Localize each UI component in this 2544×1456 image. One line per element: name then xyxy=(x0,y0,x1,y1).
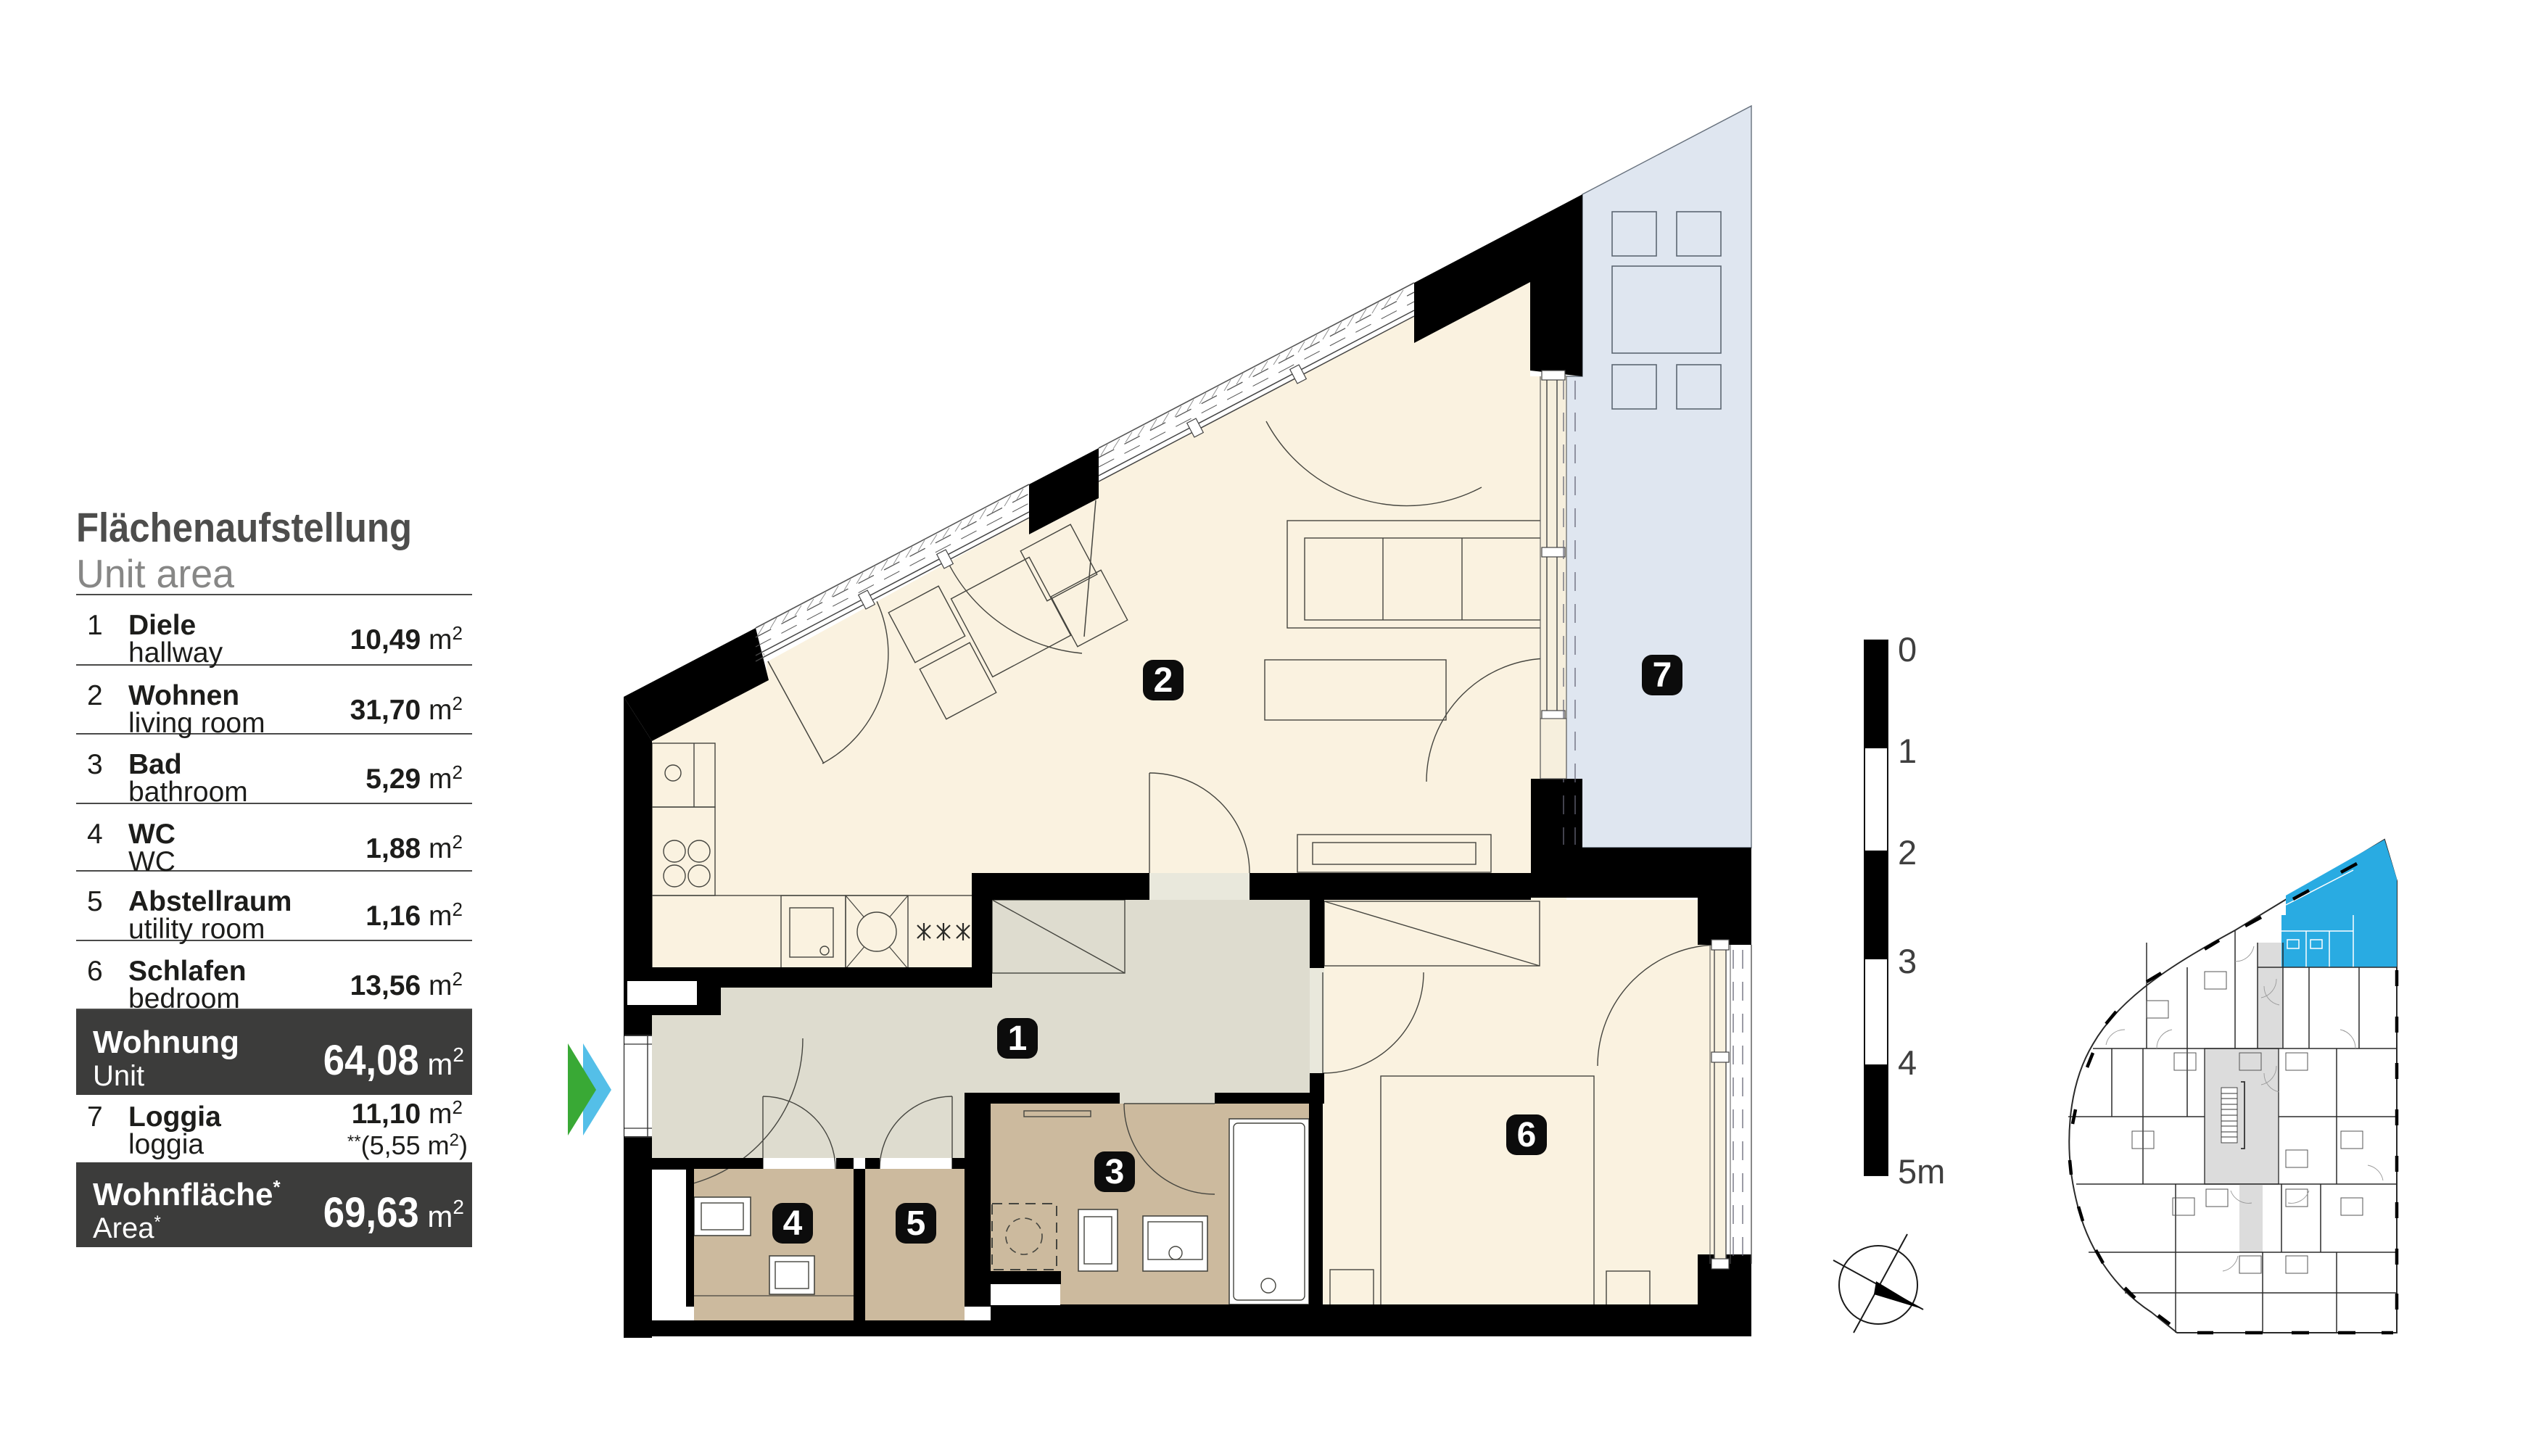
svg-text:1,16 m2: 1,16 m2 xyxy=(366,898,463,932)
svg-text:31,70 m2: 31,70 m2 xyxy=(350,692,463,726)
svg-text:3: 3 xyxy=(87,749,103,780)
svg-text:Flächenaufstellung: Flächenaufstellung xyxy=(76,505,412,551)
svg-text:Schlafen: Schlafen xyxy=(128,956,247,987)
svg-text:WC: WC xyxy=(128,846,175,877)
svg-text:Unit: Unit xyxy=(93,1060,144,1092)
svg-text:5: 5 xyxy=(87,886,103,917)
svg-text:utility room: utility room xyxy=(128,914,265,945)
svg-text:Wohnen: Wohnen xyxy=(128,680,239,711)
svg-text:Bad: Bad xyxy=(128,749,182,780)
svg-text:bathroom: bathroom xyxy=(128,777,248,808)
svg-text:7: 7 xyxy=(87,1101,103,1133)
svg-text:Loggia: Loggia xyxy=(128,1101,221,1133)
svg-text:Wohnung: Wohnung xyxy=(93,1025,239,1060)
svg-text:1: 1 xyxy=(87,610,103,641)
svg-text:1: 1 xyxy=(1898,732,1917,770)
svg-text:2: 2 xyxy=(1154,661,1173,700)
svg-text:1,88 m2: 1,88 m2 xyxy=(366,831,463,864)
svg-text:4: 4 xyxy=(1898,1043,1917,1082)
svg-text:0: 0 xyxy=(1898,630,1917,669)
svg-text:1: 1 xyxy=(1008,1019,1028,1058)
svg-text:living room: living room xyxy=(128,708,265,739)
svg-text:6: 6 xyxy=(87,956,103,987)
svg-text:4: 4 xyxy=(87,819,103,850)
svg-text:2: 2 xyxy=(87,680,103,711)
svg-text:5m: 5m xyxy=(1898,1152,1945,1191)
svg-text:5: 5 xyxy=(906,1204,926,1243)
svg-text:Wohnfläche*: Wohnfläche* xyxy=(93,1176,281,1212)
svg-text:11,10 m2: 11,10 m2 xyxy=(352,1096,463,1130)
svg-text:6: 6 xyxy=(1517,1116,1537,1154)
svg-text:**(5,55 m2): **(5,55 m2) xyxy=(347,1130,468,1160)
svg-text:4: 4 xyxy=(783,1204,803,1243)
svg-text:10,49 m2: 10,49 m2 xyxy=(350,622,463,655)
svg-text:7: 7 xyxy=(1653,656,1672,695)
svg-text:3: 3 xyxy=(1898,942,1917,980)
svg-text:WC: WC xyxy=(128,819,175,850)
svg-text:bedroom: bedroom xyxy=(128,983,240,1014)
svg-text:2: 2 xyxy=(1898,833,1917,872)
svg-text:5,29 m2: 5,29 m2 xyxy=(366,761,463,795)
svg-text:3: 3 xyxy=(1105,1153,1125,1191)
svg-text:Area*: Area* xyxy=(93,1212,161,1244)
svg-text:Abstellraum: Abstellraum xyxy=(128,886,292,917)
svg-text:Unit area: Unit area xyxy=(76,551,234,596)
svg-text:hallway: hallway xyxy=(128,637,223,669)
svg-text:loggia: loggia xyxy=(128,1129,204,1160)
svg-text:Diele: Diele xyxy=(128,610,196,641)
svg-text:13,56 m2: 13,56 m2 xyxy=(350,968,463,1001)
